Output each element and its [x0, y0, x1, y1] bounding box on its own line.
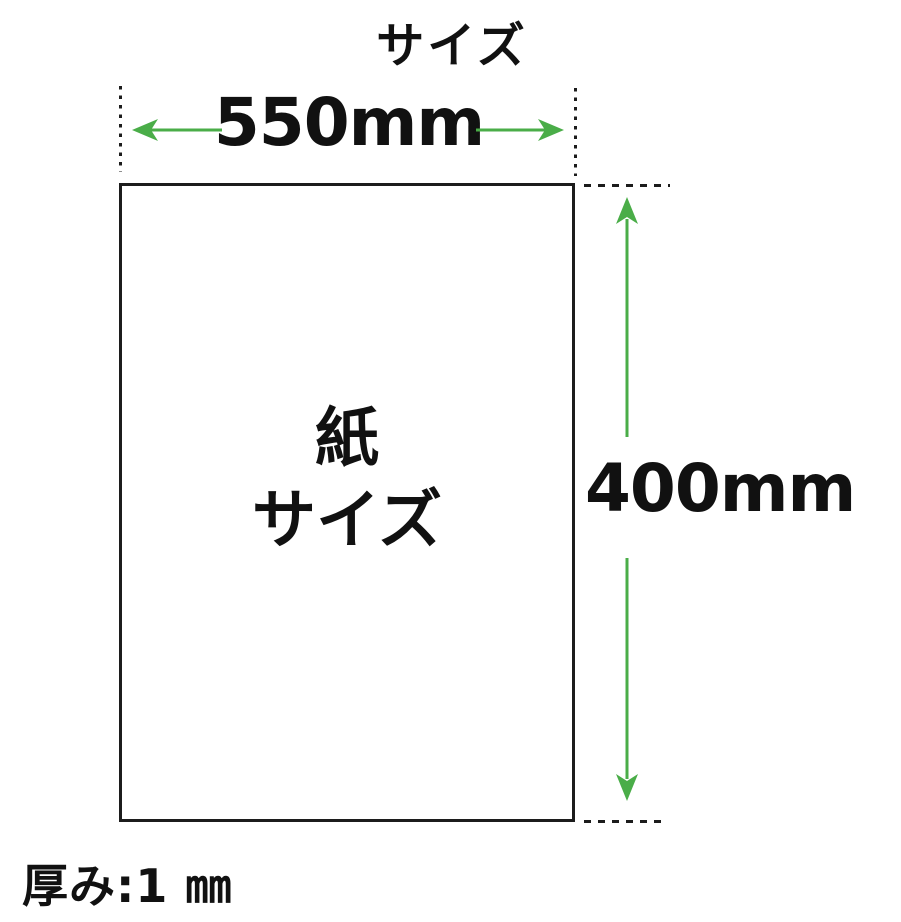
height-arrow-up-head-icon	[616, 197, 638, 224]
thickness-label: 厚み:1 ㎜	[22, 856, 232, 916]
paper-label: 紙 サイズ	[252, 398, 442, 562]
width-dimension-label: 550mm	[214, 90, 484, 156]
paper-size-diagram: サイズ 550mm 紙 サイズ 400mm 厚み:1 ㎜	[0, 0, 901, 922]
height-dimension-label: 400mm	[585, 456, 855, 522]
width-arrow-left-head-icon	[132, 119, 158, 141]
paper-label-line1: 紙	[252, 398, 442, 480]
diagram-title: サイズ	[376, 20, 528, 72]
paper-label-line2: サイズ	[252, 480, 442, 562]
height-arrow-down-head-icon	[616, 774, 638, 801]
width-arrow-right-head-icon	[538, 119, 564, 141]
